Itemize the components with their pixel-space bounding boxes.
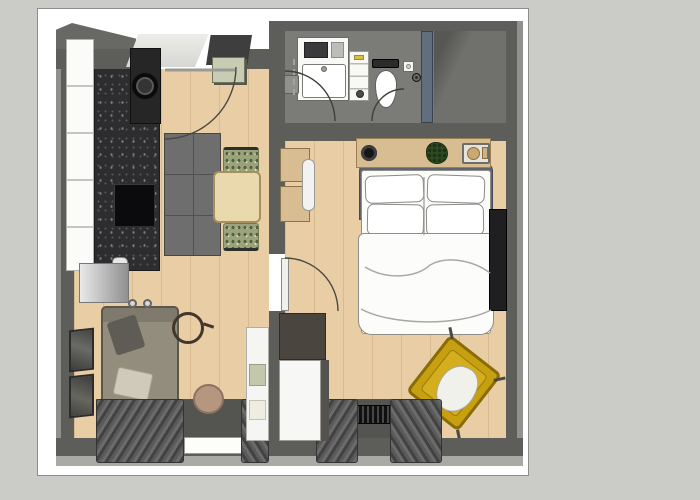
floorplan-image	[37, 8, 529, 476]
shower-head	[412, 73, 421, 82]
bathroom-open-door-leaf	[293, 59, 295, 95]
wall-art-frame	[69, 374, 94, 419]
dining-table	[213, 171, 261, 223]
sofa-caster	[143, 299, 152, 308]
sofa-throw-blanket	[112, 367, 153, 402]
floating-shelf	[356, 138, 491, 168]
sofa-throw-pillow	[106, 314, 145, 356]
wall-art-frame	[69, 328, 94, 373]
tray-item	[482, 147, 488, 159]
living-curtain-left	[96, 399, 184, 463]
bed-pillow	[367, 204, 425, 237]
shower-glass-panel	[421, 31, 433, 123]
drawer-dark-item	[356, 90, 364, 98]
bed-duvet	[358, 233, 494, 335]
dining-chair-top	[223, 147, 259, 173]
drawer-yellow-item	[354, 55, 364, 60]
desk-chair	[302, 159, 315, 211]
shower-floor	[434, 31, 506, 123]
vanity-faucet	[321, 66, 327, 72]
sofa-caster	[128, 299, 137, 308]
toilet-paper-roll	[406, 64, 411, 69]
round-ring-decor	[172, 312, 204, 344]
bedroom-door-leaf	[281, 258, 289, 311]
bedroom-white-dresser	[279, 360, 321, 441]
bedroom-dresser-side	[321, 360, 329, 441]
bed-pillow	[365, 174, 425, 204]
wall-top-bathroom	[269, 21, 523, 31]
cooktop	[113, 183, 155, 227]
washing-machine-door-icon	[132, 73, 158, 99]
bedroom-curtain-right	[390, 399, 442, 463]
shelving-unit-cream-box	[249, 400, 266, 420]
bed-pillow	[426, 203, 485, 236]
entry-shoe-cabinet	[212, 57, 245, 83]
vanity-dark-towels	[304, 42, 328, 58]
living-window-sill	[184, 437, 244, 454]
bathroom-vanity	[297, 37, 349, 101]
vanity-gray-towels	[331, 42, 344, 58]
shelving-unit	[246, 327, 269, 441]
shelving-unit-mint-box	[249, 364, 266, 386]
tv-panel	[489, 209, 507, 311]
toilet-cistern	[372, 59, 399, 68]
bedroom-dark-cabinet	[279, 313, 326, 360]
bathroom-waste-bin	[284, 75, 299, 94]
tray-round-box	[467, 147, 480, 160]
kitchen-cabinet-run	[66, 39, 94, 271]
wall-right	[506, 21, 523, 456]
refrigerator-front	[79, 263, 129, 303]
dining-chair-bottom	[223, 223, 259, 251]
decor-tray	[462, 143, 490, 164]
speaker-icon	[361, 145, 377, 161]
bathroom-storage-drawers	[349, 51, 369, 101]
plant-icon	[426, 142, 448, 164]
bed-pillow	[427, 174, 486, 204]
pouf	[193, 384, 224, 414]
toilet-paper-holder	[403, 61, 414, 72]
